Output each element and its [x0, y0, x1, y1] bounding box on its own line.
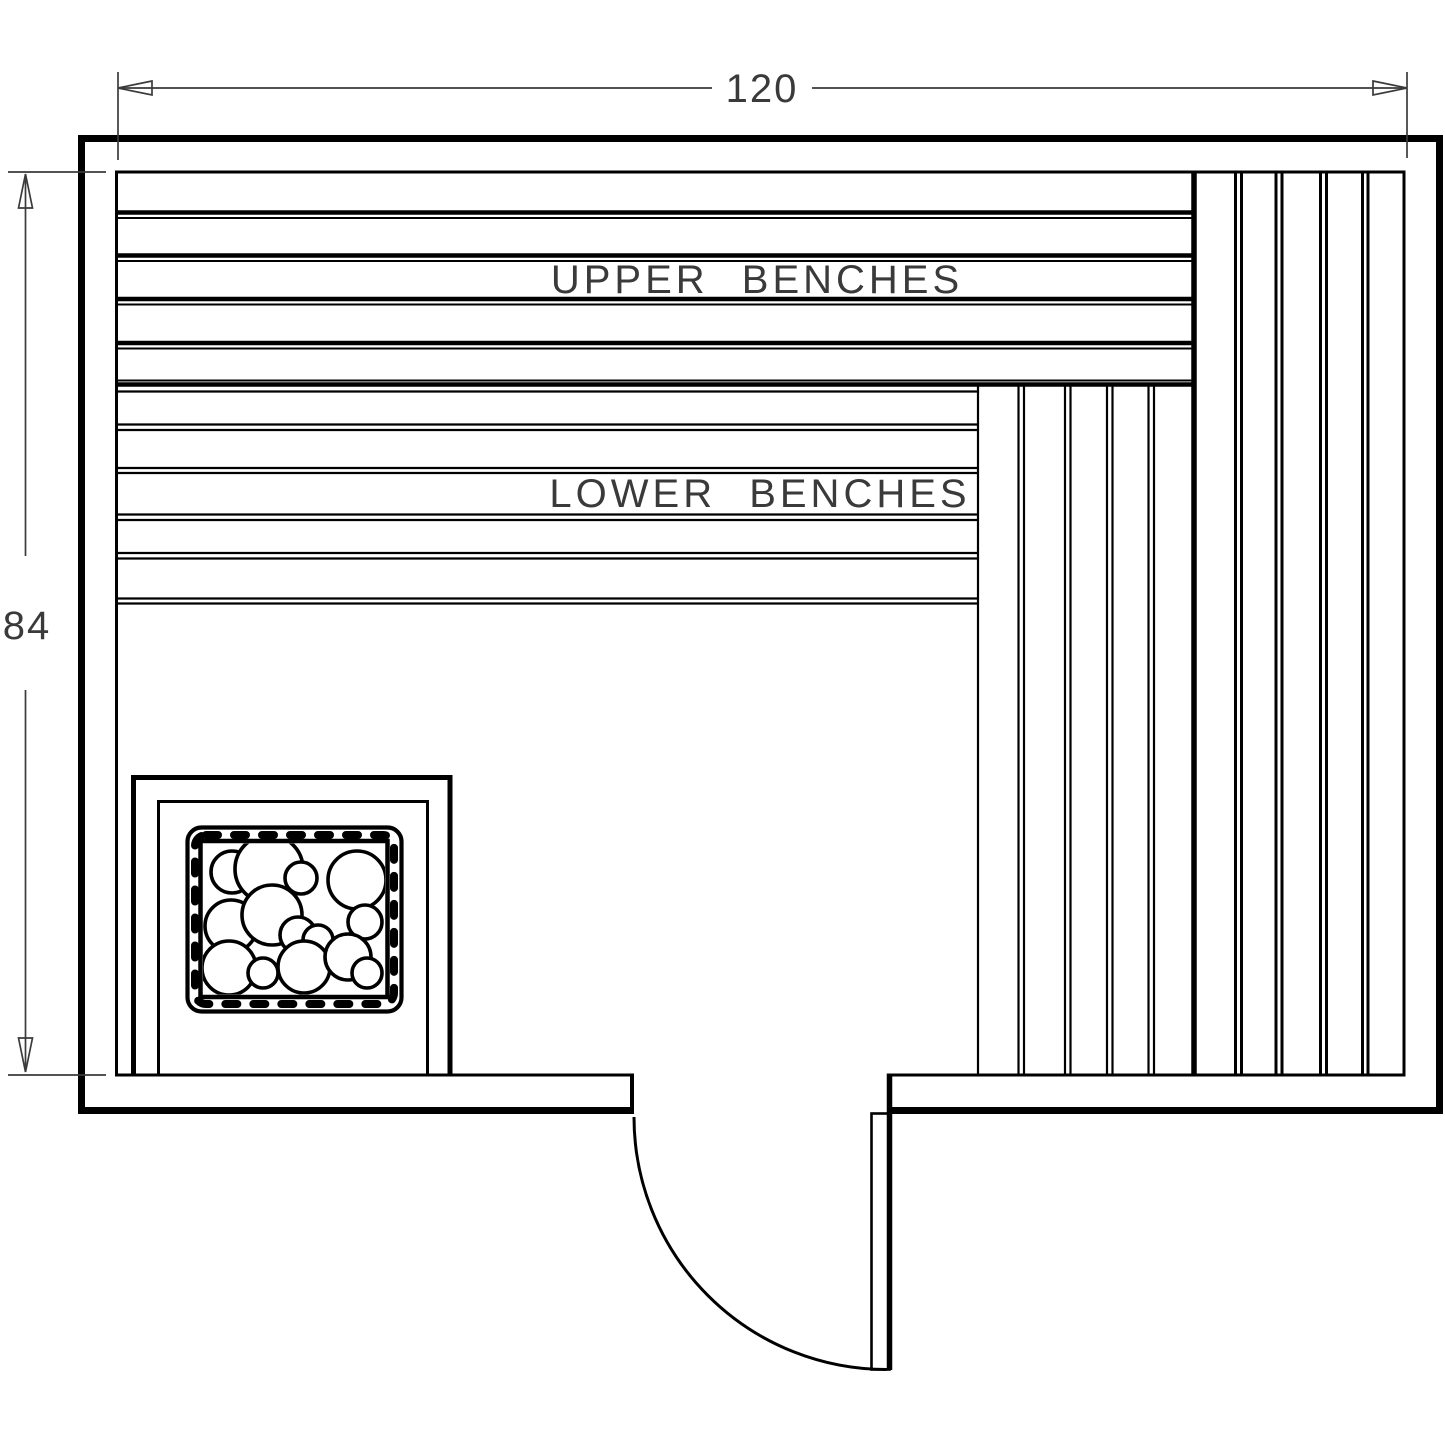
sauna-floor-plan: UPPER BENCHES LOWER BENCHES	[0, 0, 1445, 1445]
lower-benches-label: LOWER BENCHES	[549, 472, 970, 516]
door	[632, 1074, 890, 1371]
lower-benches: LOWER BENCHES	[117, 392, 979, 604]
upper-benches: UPPER BENCHES	[117, 213, 1197, 385]
width-dimension: 120	[118, 67, 1407, 160]
middle-wall-boards	[978, 387, 1154, 1074]
heater-stones	[202, 835, 386, 995]
width-dimension-value: 120	[726, 67, 799, 111]
door-swing-arc	[634, 1117, 887, 1370]
height-dimension: 84	[3, 172, 106, 1075]
right-wall-boards	[1194, 172, 1368, 1074]
heater	[134, 778, 451, 1074]
upper-benches-label: UPPER BENCHES	[551, 258, 963, 302]
height-dimension-value: 84	[3, 604, 52, 648]
floor-plan-drawing: UPPER BENCHES LOWER BENCHES	[0, 0, 1445, 1445]
